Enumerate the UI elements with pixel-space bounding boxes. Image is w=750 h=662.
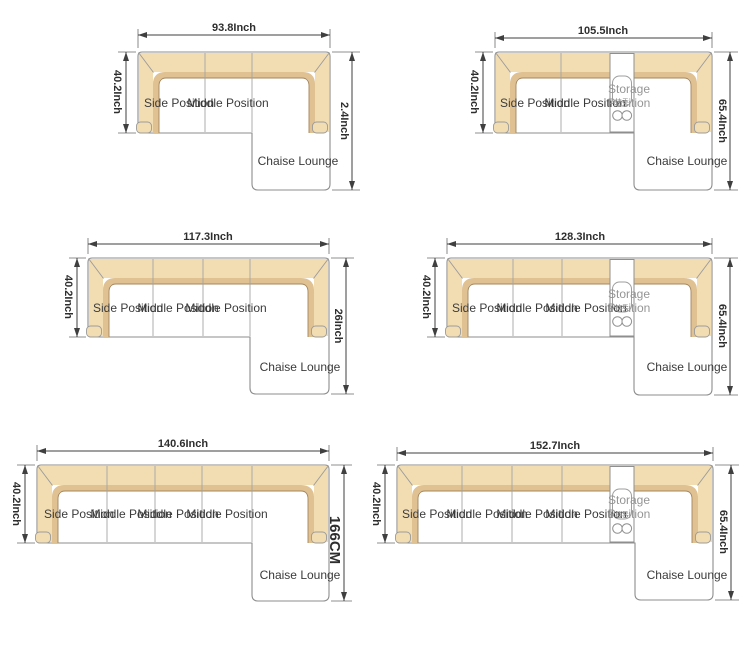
- left-depth-dimension: 40.2Inch: [370, 465, 395, 543]
- right-depth-dimension: 65.4Inch: [714, 258, 738, 395]
- seat-label: Middle Position: [187, 96, 268, 110]
- chaise-label: Chaise Lounge: [260, 568, 341, 582]
- storage-label-line2: Position: [608, 301, 651, 315]
- right-depth-value: 26Inch: [332, 309, 344, 344]
- right-depth-value: 65.4Inch: [717, 510, 729, 554]
- left-depth-value: 40.2Inch: [10, 482, 22, 526]
- chaise-label: Chaise Lounge: [260, 360, 341, 374]
- sofa-diagram-4: 扶手 128.3Inch 40.2Inch 65.4Inch Side Posi…: [420, 231, 738, 395]
- left-depth-value: 40.2Inch: [420, 275, 432, 319]
- top-width-dimension: 93.8Inch: [138, 22, 330, 48]
- sofa-diagram-6: 扶手 152.7Inch 40.2Inch 65.4Inch Side Posi…: [370, 440, 739, 600]
- top-width-dimension: 128.3Inch: [447, 231, 712, 254]
- storage-label-line2: Position: [608, 507, 651, 521]
- storage-label-line1: Storage: [608, 493, 650, 507]
- storage-label-line1: Storage: [608, 287, 650, 301]
- left-depth-value: 40.2Inch: [370, 482, 382, 526]
- left-depth-dimension: 40.2Inch: [111, 52, 136, 133]
- top-width-value: 128.3Inch: [555, 231, 605, 243]
- sofa-diagram-5: 140.6Inch 40.2Inch 166CM Side Position M…: [10, 438, 352, 601]
- right-depth-value: 65.4Inch: [716, 99, 728, 143]
- sofa-dimension-sheet: 93.8Inch 40.2Inch 2.4Inch Side Position …: [0, 0, 750, 662]
- left-depth-dimension: 40.2Inch: [420, 258, 445, 337]
- cupholder-icon: [613, 524, 623, 534]
- top-width-value: 152.7Inch: [530, 440, 580, 452]
- right-depth-value: 2.4Inch: [338, 102, 350, 140]
- sofa-diagram-3: 117.3Inch 40.2Inch 26Inch Side Position …: [62, 231, 354, 394]
- seat-label: Middle Position: [185, 301, 266, 315]
- top-width-dimension: 105.5Inch: [495, 25, 712, 48]
- storage-label-line1: Storage: [608, 82, 650, 96]
- top-width-value: 105.5Inch: [578, 25, 628, 37]
- top-width-value: 117.3Inch: [183, 231, 233, 243]
- left-depth-value: 40.2Inch: [62, 275, 74, 319]
- cupholder-icon: [622, 524, 632, 534]
- left-depth-dimension: 40.2Inch: [468, 52, 493, 133]
- storage-label-line2: Position: [608, 96, 651, 110]
- chaise-label: Chaise Lounge: [647, 568, 728, 582]
- left-depth-dimension: 40.2Inch: [10, 465, 35, 543]
- right-depth-dimension: 2.4Inch: [332, 52, 360, 190]
- cupholder-icon: [613, 317, 623, 327]
- diagram-canvas: 93.8Inch 40.2Inch 2.4Inch Side Position …: [0, 0, 750, 662]
- top-width-value: 93.8Inch: [212, 22, 256, 34]
- top-width-dimension: 152.7Inch: [397, 440, 713, 461]
- top-width-dimension: 140.6Inch: [37, 438, 329, 461]
- cupholder-icon: [622, 317, 632, 327]
- left-depth-value: 40.2Inch: [468, 70, 480, 114]
- chaise-label: Chaise Lounge: [647, 360, 728, 374]
- cupholder-icon: [613, 111, 623, 121]
- chaise-label: Chaise Lounge: [258, 154, 339, 168]
- top-width-value: 140.6Inch: [158, 438, 208, 450]
- left-depth-value: 40.2Inch: [111, 70, 123, 114]
- cupholder-icon: [622, 111, 632, 121]
- top-width-dimension: 117.3Inch: [88, 231, 329, 254]
- right-depth-value: 65.4Inch: [716, 304, 728, 348]
- seat-label: Middle Position: [186, 507, 267, 521]
- right-depth-value: 166CM: [326, 516, 343, 564]
- left-depth-dimension: 40.2Inch: [62, 258, 86, 337]
- right-depth-dimension: 65.4Inch: [714, 52, 738, 190]
- chaise-label: Chaise Lounge: [647, 154, 728, 168]
- sofa-diagram-2: 扶手 105.5Inch 40.2Inch 65.4Inch Side Posi…: [468, 25, 738, 190]
- sofa-diagram-1: 93.8Inch 40.2Inch 2.4Inch Side Position …: [111, 22, 360, 190]
